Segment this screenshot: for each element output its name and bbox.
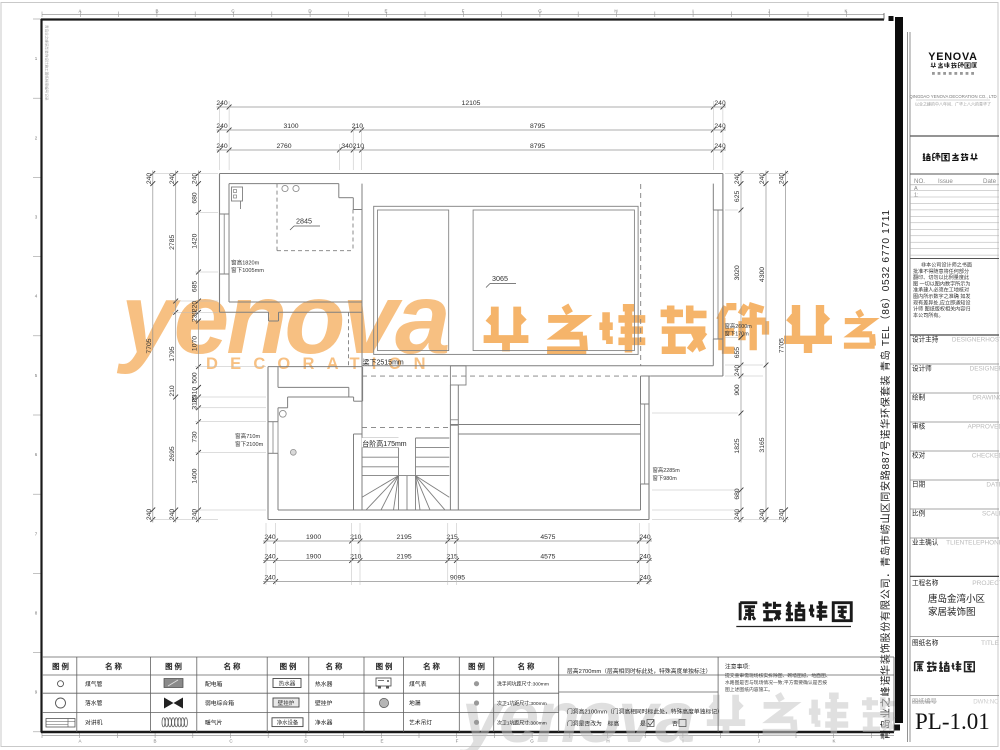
svg-text:240: 240 [759, 173, 766, 185]
svg-text:准承建人必须在工地核对: 准承建人必须在工地核对 [913, 287, 969, 294]
svg-text:CHECKED: CHECKED [972, 453, 1000, 460]
svg-text:6: 6 [35, 452, 38, 457]
svg-text:240: 240 [779, 509, 786, 521]
svg-text:3100: 3100 [283, 123, 298, 130]
svg-text:240: 240 [192, 509, 199, 521]
svg-text:500: 500 [192, 372, 199, 384]
svg-text:PL-1.01: PL-1.01 [915, 709, 990, 734]
svg-text:240: 240 [779, 173, 786, 185]
svg-text:YENOVA: YENOVA [928, 51, 978, 63]
svg-text:4300: 4300 [759, 267, 766, 282]
svg-text:685: 685 [192, 281, 199, 293]
svg-text:PROJECT: PROJECT [972, 580, 1000, 587]
svg-text:以业之峰的中八年间．广华上八六的青华了: 以业之峰的中八年间．广华上八六的青华了 [915, 101, 991, 107]
svg-text:DATE: DATE [986, 482, 1000, 489]
svg-text:窗高710m: 窗高710m [235, 432, 261, 440]
svg-text:A: A [914, 186, 918, 192]
svg-text:4575: 4575 [540, 554, 555, 561]
svg-text:7: 7 [35, 531, 38, 536]
svg-text:青岛业之峰诺华装饰股份有限公司．青岛市崂山区同安路887号诺: 青岛业之峰诺华装饰股份有限公司．青岛市崂山区同安路887号诺华环保套装 青岛 T… [879, 210, 892, 740]
svg-text:本公司所有。: 本公司所有。 [913, 312, 944, 319]
svg-text:240: 240 [146, 173, 153, 185]
svg-text:否: 否 [672, 721, 678, 728]
svg-text:名 称: 名 称 [224, 662, 241, 671]
svg-text:1: 1 [35, 56, 38, 61]
svg-text:名 称: 名 称 [423, 662, 440, 671]
svg-text:图 一切以图内数字所示为: 图 一切以图内数字所示为 [913, 280, 970, 287]
svg-text:240: 240 [216, 100, 228, 107]
svg-text:煤气管: 煤气管 [85, 680, 103, 688]
svg-text:F: F [456, 739, 459, 744]
svg-text:图 例: 图 例 [376, 662, 393, 671]
svg-text:9095: 9095 [450, 575, 465, 582]
svg-text:K: K [832, 739, 835, 744]
svg-text:2785: 2785 [169, 235, 176, 250]
svg-text:SCALE: SCALE [982, 511, 1000, 518]
svg-text:图纸名称: 图纸名称 [912, 638, 939, 647]
svg-text:900: 900 [734, 384, 741, 396]
svg-text:图纸编号: 图纸编号 [912, 698, 937, 706]
svg-text:3165: 3165 [759, 437, 766, 452]
svg-text:台阶高175mm: 台阶高175mm [362, 439, 407, 448]
svg-text:240: 240 [169, 509, 176, 521]
svg-text:提交重审需现场核实拆除图、砌墙图纸、地面图、: 提交重审需现场核实拆除图、砌墙图纸、地面图、 [725, 672, 831, 679]
svg-text:210: 210 [353, 143, 365, 150]
svg-text:门洞是否改为 标高: 门洞是否改为 标高 [567, 720, 619, 728]
svg-text:热水器: 热水器 [315, 680, 333, 688]
svg-text:1420: 1420 [192, 233, 199, 248]
svg-text:2695: 2695 [169, 446, 176, 461]
svg-text:240: 240 [169, 173, 176, 185]
svg-text:工程名称: 工程名称 [912, 578, 939, 587]
svg-text:7705: 7705 [779, 338, 786, 353]
svg-text:青岛业之峰诺华装饰设计施工图纸档案编号记录: 青岛业之峰诺华装饰设计施工图纸档案编号记录 [45, 25, 50, 101]
svg-text:TITLE: TITLE [981, 640, 1000, 647]
svg-text:日期: 日期 [912, 481, 926, 489]
svg-text:校对: 校对 [912, 451, 926, 460]
svg-text:非本公司设计师之书面: 非本公司设计师之书面 [921, 262, 972, 269]
svg-text:3065: 3065 [492, 274, 508, 283]
svg-text:门洞高2100mm（门洞高相同时标此处，特殊高度单独标记）: 门洞高2100mm（门洞高相同时标此处，特殊高度单独标记） [567, 708, 723, 716]
svg-text:窗下980m: 窗下980m [653, 474, 678, 482]
svg-text:比例: 比例 [912, 509, 926, 518]
svg-text:Issue: Issue [938, 178, 953, 185]
svg-text:配电箱: 配电箱 [205, 680, 223, 688]
svg-text:1795: 1795 [169, 346, 176, 361]
svg-text:7705: 7705 [146, 338, 153, 353]
svg-text:洗手间坑距尺寸:300mm: 洗手间坑距尺寸:300mm [497, 681, 549, 688]
svg-text:现有差异处,应立即通知设: 现有差异处,应立即通知设 [913, 299, 970, 306]
svg-text:次卫1坑距尺寸:300mm: 次卫1坑距尺寸:300mm [497, 700, 547, 707]
svg-text:壁挂炉: 壁挂炉 [315, 699, 333, 707]
svg-text:J: J [758, 739, 760, 744]
svg-text:图 例: 图 例 [165, 662, 182, 671]
svg-text:8795: 8795 [530, 123, 545, 130]
svg-text:名 称: 名 称 [326, 662, 343, 671]
svg-text:9: 9 [35, 690, 38, 695]
svg-text:DESIGNER: DESIGNER [970, 366, 1000, 373]
svg-text:680: 680 [192, 192, 199, 204]
svg-text:翻印、切勿以比例量度此: 翻印、切勿以比例量度此 [913, 274, 969, 281]
svg-text:名 称: 名 称 [518, 662, 535, 671]
svg-text:240: 240 [734, 509, 741, 521]
svg-text:B: B [153, 739, 156, 744]
svg-text:2760: 2760 [276, 143, 291, 150]
svg-text:家居装饰图: 家居装饰图 [928, 606, 976, 618]
svg-text:热水器: 热水器 [279, 680, 296, 688]
svg-text:业主确认: 业主确认 [912, 538, 939, 547]
svg-text:图上述图纸内容施工。: 图上述图纸内容施工。 [725, 686, 773, 693]
svg-text:240: 240 [759, 509, 766, 521]
svg-text:240: 240 [714, 123, 726, 130]
svg-text:绘制: 绘制 [912, 393, 926, 402]
svg-text:1400: 1400 [192, 468, 199, 483]
svg-text:1900: 1900 [306, 554, 321, 561]
svg-text:3: 3 [35, 215, 38, 220]
svg-text:240: 240 [734, 365, 741, 377]
svg-text:Date: Date [983, 178, 997, 185]
svg-text:落水管: 落水管 [85, 699, 103, 707]
svg-text:DRAWING: DRAWING [972, 395, 1000, 402]
svg-text:唐岛金湾小区: 唐岛金湾小区 [928, 593, 986, 605]
svg-text:1070: 1070 [192, 336, 199, 351]
svg-text:计师 图纸版权相关内容归: 计师 图纸版权相关内容归 [913, 306, 970, 313]
svg-text:图内所示数字之准确 如发: 图内所示数字之准确 如发 [913, 293, 970, 300]
svg-text:8795: 8795 [530, 143, 545, 150]
svg-text:H: H [614, 9, 617, 14]
svg-text:G: G [538, 9, 542, 14]
svg-text:A: A [78, 739, 81, 744]
svg-text:1:: 1: [914, 193, 919, 199]
svg-text:设计师: 设计师 [912, 364, 932, 373]
svg-text:4: 4 [35, 294, 38, 299]
svg-text:艺术吊灯: 艺术吊灯 [409, 719, 432, 727]
svg-text:弱电综合箱: 弱电综合箱 [205, 699, 234, 707]
svg-text:窗下1005mm: 窗下1005mm [231, 266, 264, 274]
svg-text:层高2700mm（层高相同时标此处，特殊高度单独标注）: 层高2700mm（层高相同时标此处，特殊高度单独标注） [567, 667, 711, 675]
svg-text:审核: 审核 [912, 422, 926, 431]
svg-text:窗高2600m: 窗高2600m [725, 322, 753, 330]
svg-text:3020: 3020 [734, 265, 741, 280]
svg-text:煤气表: 煤气表 [409, 680, 427, 688]
svg-text:图 例: 图 例 [280, 662, 297, 671]
svg-text:F: F [462, 9, 465, 14]
svg-text:C: C [229, 739, 233, 744]
svg-text:图 例: 图 例 [468, 662, 485, 671]
svg-text:K: K [844, 9, 847, 14]
svg-text:C: C [231, 9, 235, 14]
svg-text:TLIENTELEPHONE: TLIENTELEPHONE [946, 540, 1000, 547]
svg-text:NO.: NO. [914, 178, 925, 185]
svg-text:净水器: 净水器 [315, 719, 333, 727]
svg-text:B: B [155, 9, 158, 14]
svg-text:图 例: 图 例 [52, 662, 69, 671]
svg-text:是: 是 [640, 721, 646, 728]
svg-text:8: 8 [35, 611, 38, 616]
svg-text:240: 240 [734, 173, 741, 185]
svg-text:240: 240 [216, 143, 228, 150]
svg-text:220: 220 [192, 301, 199, 313]
svg-text:730: 730 [192, 431, 199, 443]
svg-text:210: 210 [169, 385, 176, 397]
svg-text:窗高2285m: 窗高2285m [653, 466, 681, 474]
svg-text:DESIGNERHOST: DESIGNERHOST [952, 337, 1000, 344]
svg-text:DWN:NO: DWN:NO [973, 699, 999, 706]
svg-text:2195: 2195 [397, 554, 412, 561]
svg-text:340: 340 [341, 143, 353, 150]
svg-text:D: D [304, 739, 308, 744]
svg-text:E: E [384, 9, 387, 14]
svg-text:窗下2100m: 窗下2100m [235, 440, 264, 448]
svg-text:240: 240 [216, 123, 228, 130]
svg-text:A: A [78, 9, 81, 14]
svg-text:名 称: 名 称 [105, 662, 122, 671]
svg-text:240: 240 [146, 509, 153, 521]
svg-text:注意事项:: 注意事项: [725, 663, 750, 671]
svg-text:I: I [692, 9, 693, 14]
svg-text:梁下2515mm: 梁下2515mm [363, 358, 404, 367]
svg-text:655: 655 [734, 347, 741, 359]
svg-text:2: 2 [35, 135, 38, 140]
svg-text:625: 625 [734, 191, 741, 203]
svg-text:壁挂炉: 壁挂炉 [278, 699, 295, 707]
svg-text:4575: 4575 [540, 534, 555, 541]
svg-text:QINGDAO YENOVA DECORATION CO.,: QINGDAO YENOVA DECORATION CO., LTD [909, 94, 996, 99]
svg-text:2845: 2845 [296, 217, 312, 226]
svg-text:净水设备: 净水设备 [277, 719, 299, 727]
svg-text:对讲机: 对讲机 [85, 719, 103, 727]
svg-text:1825: 1825 [734, 438, 741, 453]
svg-text:12105: 12105 [462, 100, 481, 107]
svg-text:地漏: 地漏 [409, 699, 421, 707]
svg-text:J: J [768, 9, 770, 14]
svg-text:240: 240 [714, 143, 726, 150]
svg-text:1900: 1900 [306, 534, 321, 541]
svg-text:暖气片: 暖气片 [205, 719, 223, 727]
svg-text:窗高1820m: 窗高1820m [231, 259, 260, 267]
svg-text:D: D [308, 9, 312, 14]
svg-text:240: 240 [714, 100, 726, 107]
svg-text:窗下170m: 窗下170m [725, 330, 750, 338]
svg-text:2195: 2195 [397, 534, 412, 541]
svg-text:设计主持: 设计主持 [912, 335, 939, 344]
svg-text:5: 5 [35, 373, 38, 378]
svg-text:次卫1坑距尺寸:300mm: 次卫1坑距尺寸:300mm [497, 719, 547, 726]
svg-text:APPROVED: APPROVED [967, 424, 1000, 431]
svg-text:240: 240 [192, 173, 199, 185]
svg-text:水路图是否与现场情况一致;平方需要确认是否按: 水路图是否与现场情况一致;平方需要确认是否按 [725, 679, 827, 686]
svg-text:批准不得随意将任何部分: 批准不得随意将任何部分 [913, 268, 969, 275]
svg-text:E: E [380, 739, 383, 744]
